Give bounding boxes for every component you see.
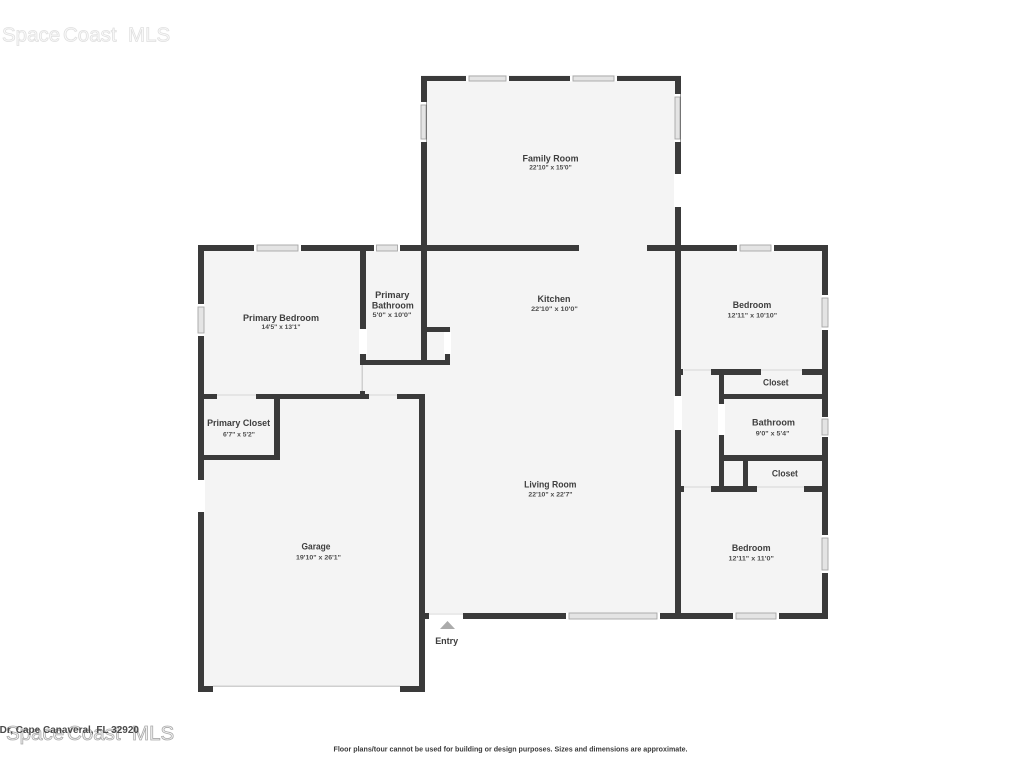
svg-text:Bedroom: Bedroom (732, 543, 771, 553)
svg-text:6'7" x 5'2": 6'7" x 5'2" (223, 432, 255, 439)
svg-text:Primary: Primary (375, 290, 409, 300)
svg-text:Primary Closet: Primary Closet (207, 418, 270, 428)
svg-text:Closet: Closet (763, 378, 789, 388)
svg-text:Bathroom: Bathroom (372, 301, 414, 311)
svg-text:Living Room: Living Room (524, 480, 576, 490)
svg-text:Family Room: Family Room (523, 154, 579, 164)
svg-text:12'11" x 10'10": 12'11" x 10'10" (728, 313, 778, 320)
svg-text:14'5" x 13'1": 14'5" x 13'1" (262, 324, 301, 331)
svg-text:er Dr, Cape Canaveral, FL 3292: er Dr, Cape Canaveral, FL 32920 (0, 725, 139, 736)
svg-text:Garage: Garage (302, 542, 331, 552)
svg-text:Floor plans/tour cannot be use: Floor plans/tour cannot be used for buil… (334, 747, 688, 754)
svg-text:Entry: Entry (435, 636, 458, 646)
svg-text:22'10" x 10'0": 22'10" x 10'0" (531, 306, 578, 313)
svg-text:Closet: Closet (772, 469, 798, 479)
svg-text:SpaceCoastMLS: SpaceCoastMLS (2, 24, 170, 47)
svg-text:19'10" x 26'1": 19'10" x 26'1" (296, 555, 341, 562)
svg-text:12'11" x 11'0": 12'11" x 11'0" (729, 555, 774, 562)
svg-text:Primary Bedroom: Primary Bedroom (243, 313, 319, 323)
svg-text:9'0" x 5'4": 9'0" x 5'4" (756, 431, 790, 438)
svg-text:Bedroom: Bedroom (733, 300, 772, 310)
svg-text:Bathroom: Bathroom (752, 418, 795, 428)
svg-text:22'10" x 15'0": 22'10" x 15'0" (529, 165, 572, 172)
svg-text:Kitchen: Kitchen (538, 294, 571, 304)
svg-text:22'10" x 22'7": 22'10" x 22'7" (528, 491, 572, 498)
svg-text:5'0" x 10'0": 5'0" x 10'0" (373, 312, 412, 319)
